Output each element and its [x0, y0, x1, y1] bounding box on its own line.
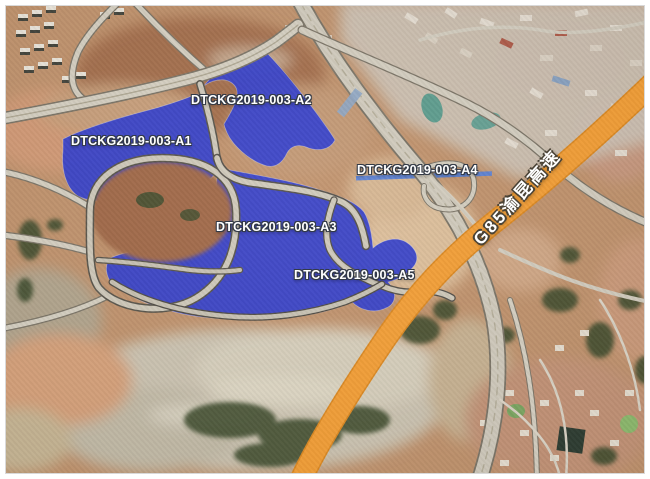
- pond-dark: [556, 426, 585, 453]
- map-canvas: [6, 6, 644, 473]
- parcel-label-a2: DTCKG2019-003-A2: [191, 93, 312, 107]
- parcel-label-a3: DTCKG2019-003-A3: [216, 220, 337, 234]
- parcel-label-a4: DTCKG2019-003-A4: [357, 163, 478, 177]
- map-image: [6, 6, 644, 473]
- loop-trees-2: [180, 209, 200, 221]
- parcel-label-a1: DTCKG2019-003-A1: [71, 134, 192, 148]
- loop-interior-terrain: [92, 162, 232, 262]
- loop-trees: [136, 192, 164, 208]
- pond-green-round: [620, 415, 638, 433]
- parcel-label-a5: DTCKG2019-003-A5: [294, 268, 415, 282]
- satellite-map-screenshot: DTCKG2019-003-A1 DTCKG2019-003-A2 DTCKG2…: [0, 0, 650, 479]
